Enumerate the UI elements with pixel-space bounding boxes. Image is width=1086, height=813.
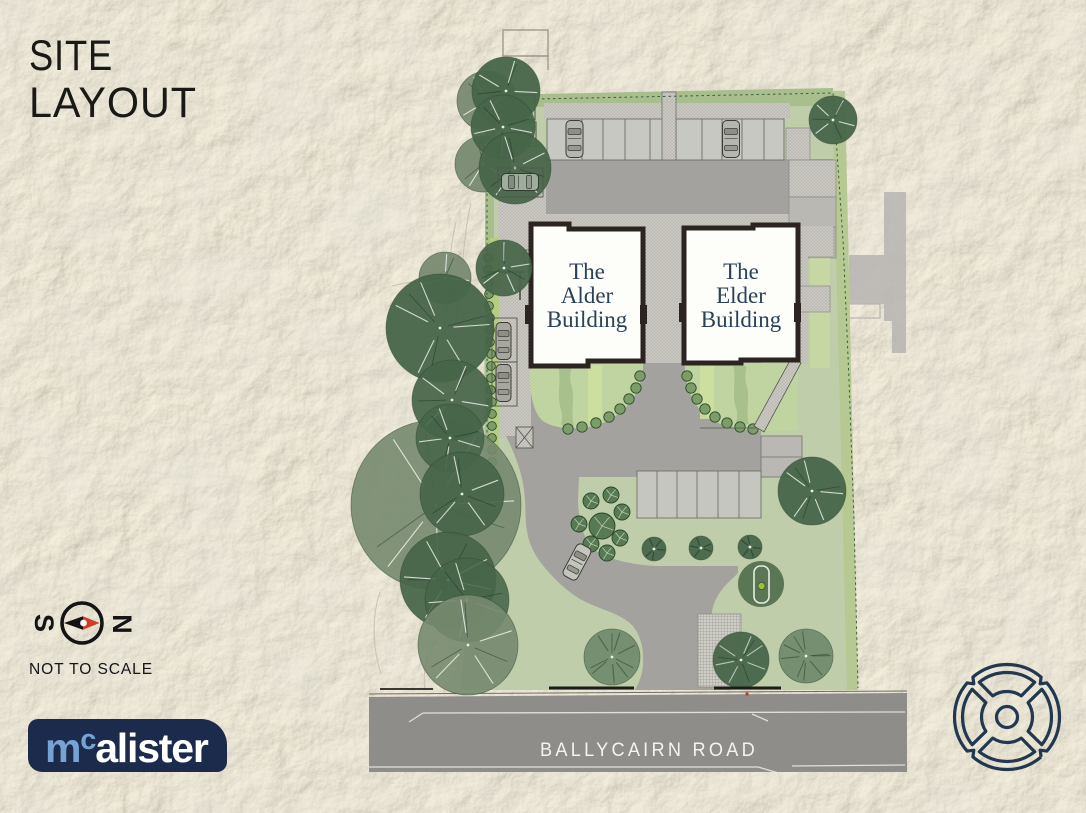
svg-text:Building: Building — [701, 307, 782, 332]
svg-text:Alder: Alder — [561, 283, 614, 308]
svg-text:mcalister: mcalister — [45, 724, 209, 771]
svg-text:The: The — [723, 259, 759, 284]
svg-text:N: N — [107, 614, 137, 634]
svg-text:NOT TO SCALE: NOT TO SCALE — [29, 661, 153, 678]
svg-text:Elder: Elder — [716, 283, 766, 308]
svg-text:SITE: SITE — [29, 32, 113, 80]
svg-text:Building: Building — [547, 307, 628, 332]
svg-text:The: The — [569, 259, 605, 284]
svg-text:LAYOUT: LAYOUT — [29, 79, 197, 127]
svg-text:BALLYCAIRN ROAD: BALLYCAIRN ROAD — [540, 739, 758, 761]
svg-text:S: S — [29, 614, 59, 632]
